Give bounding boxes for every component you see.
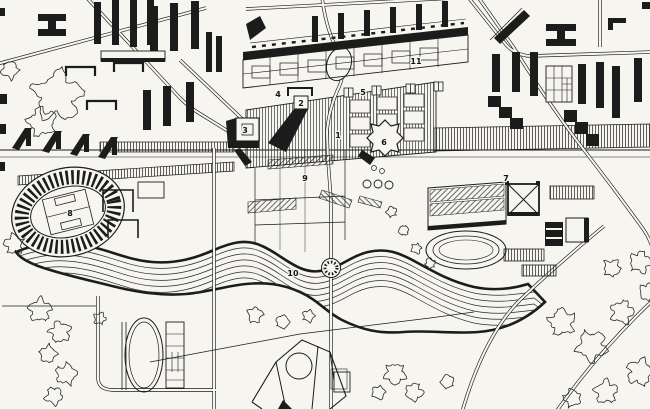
plan-label-4: 4: [275, 90, 281, 99]
tree-outline: [592, 378, 617, 403]
plan-label-10: 10: [287, 269, 299, 278]
tree-outline: [440, 375, 454, 390]
tree-outline: [43, 387, 62, 406]
grid-courtyard-block: [546, 66, 572, 102]
stepped-block: [488, 96, 523, 129]
tree-outline: [372, 385, 386, 400]
roundabout-island: [322, 259, 341, 278]
tree-outline: [247, 307, 264, 323]
site-plan-page: 1234567891011: [0, 0, 650, 409]
park-grid-building: [166, 322, 184, 388]
plan-label-8: 8: [67, 209, 73, 218]
tree-outline: [39, 343, 59, 363]
tree-outline: [27, 296, 52, 321]
ramp-band: [319, 190, 352, 208]
tree-outline: [303, 309, 316, 323]
tree-outline: [626, 357, 650, 387]
tree-outline: [405, 383, 424, 402]
long-block-north: [243, 1, 468, 88]
tree-outline: [411, 243, 422, 254]
tree-outline: [398, 226, 408, 236]
tree-outline: [47, 321, 72, 342]
dark-roof-band: [243, 27, 468, 60]
tree-outline: [276, 315, 290, 329]
tree-outline: [55, 362, 77, 387]
h-shaped-block: [38, 14, 66, 36]
tree-outline: [604, 260, 622, 277]
tree-circles: [363, 180, 393, 189]
tree-outline: [30, 67, 85, 121]
plan-label-3: 3: [242, 126, 248, 135]
building-4: [288, 88, 312, 96]
tick-band-east-walkway: [434, 124, 650, 151]
plan-label-1: 1: [335, 131, 341, 140]
tree-outline: [385, 206, 396, 218]
tree-outline: [547, 307, 575, 335]
sports-complex: [426, 181, 594, 276]
plan-label-5: 5: [360, 88, 366, 97]
plan-label-9: 9: [302, 174, 308, 183]
tree-outline: [94, 312, 107, 325]
esplanade: [248, 150, 393, 252]
tree-outline: [574, 330, 609, 364]
riverside-park: [122, 318, 350, 409]
plan-label-6: 6: [381, 138, 387, 147]
plan-label-2: 2: [298, 99, 304, 108]
tree-outline: [640, 283, 650, 302]
dark-wedge: [246, 16, 266, 40]
tree-outline: [0, 62, 20, 81]
angular-pavilion: [252, 340, 350, 409]
plan-label-11: 11: [410, 57, 422, 66]
h-shaped-block: [546, 24, 576, 46]
running-track-oval: [125, 318, 163, 392]
plan-label-7: 7: [503, 174, 509, 183]
tree-outline: [383, 365, 406, 385]
tree-outline: [630, 251, 650, 274]
oval-pool: [426, 231, 506, 269]
site-plan-drawing: 1234567891011: [0, 0, 650, 409]
